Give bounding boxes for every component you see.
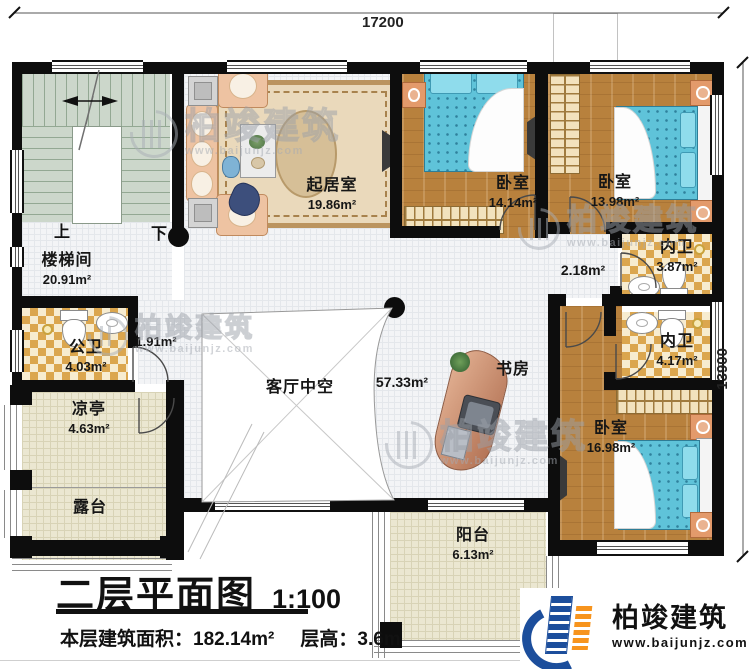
room-label-bedroom3: 卧室16.98m² [587, 419, 635, 457]
company-website: www.baijunjz.com [612, 635, 748, 650]
dimension-top: 17200 [362, 14, 404, 31]
public-bath-drain [42, 324, 53, 335]
room-label-bedroom2: 卧室13.98m² [591, 173, 639, 211]
column-dot [168, 226, 189, 247]
bedroom3-closet [616, 388, 714, 414]
public-bath-sink [96, 312, 128, 334]
stair-treads-right [120, 126, 170, 222]
roof-outline [553, 13, 618, 62]
bath2-sink [626, 312, 658, 334]
window [10, 330, 24, 372]
bath2-drain [692, 318, 703, 329]
railing [4, 490, 20, 538]
bedroom1-nightstand [402, 82, 426, 108]
side-table-top [188, 76, 218, 106]
bedroom3-pillow [682, 446, 698, 480]
window [420, 60, 527, 74]
floor-height-value: 3.6m [357, 629, 400, 650]
room-label-living: 起居室19.86m² [306, 176, 357, 214]
area-label-nook: 2.18m² [561, 261, 605, 279]
column-dot [384, 297, 405, 318]
pavilion-terrace-divider [22, 487, 166, 488]
company-logo: 柏竣建筑 www.baijunjz.com [520, 588, 750, 664]
window [227, 60, 347, 74]
area-label-corridor: 1.91m² [135, 334, 176, 351]
window [215, 498, 330, 512]
window [52, 60, 143, 74]
room-label-stairwell: 楼梯间20.91m² [41, 251, 92, 289]
bedroom2-wardrobe [550, 74, 580, 174]
side-table-bottom [188, 198, 218, 228]
stair-treads-top [22, 70, 170, 126]
bedroom2-pillow [680, 152, 696, 188]
room-label-terrace: 露台 [73, 498, 107, 519]
window [710, 95, 724, 175]
window [10, 150, 24, 213]
bedroom1-pillow [430, 72, 472, 94]
room-label-bedroom1: 卧室14.14m² [489, 174, 537, 212]
floor-height-label: 层高： [300, 629, 357, 650]
title-underline [56, 609, 308, 614]
coffee-table [240, 124, 276, 178]
room-label-pavilion: 凉亭4.63m² [68, 400, 109, 438]
company-name: 柏竣建筑 [612, 602, 748, 634]
window [590, 60, 690, 74]
room-label-bath1: 内卫3.87m² [656, 238, 697, 276]
study-plant [450, 352, 470, 372]
window [597, 540, 688, 556]
window [10, 247, 24, 267]
pillar [10, 536, 32, 558]
bedroom2-pillow [680, 112, 696, 148]
pillar [10, 385, 32, 405]
floor-area-label: 本层建筑面积： [60, 629, 193, 650]
dimension-right: 13900 [714, 348, 731, 390]
room-label-study: 书房 [496, 360, 530, 381]
room-label-balcony: 阳台6.13m² [452, 526, 493, 564]
room-label-bath2: 内卫4.17m² [656, 332, 697, 370]
floor-area-value: 182.14m² [193, 629, 274, 650]
floor-plan-sheet: 17200 13900 上 下 楼梯间20.91m² 起居室19.86m² 卧室… [0, 0, 750, 669]
room-label-public-bath: 公卫4.03m² [65, 338, 106, 376]
drawing-info: 本层建筑面积：182.14m² 层高：3.6m [60, 624, 401, 651]
stair-up-label: 上 [54, 218, 70, 242]
stair-treads-left [22, 126, 72, 222]
figure-decor [222, 156, 240, 178]
company-logo-icon [520, 594, 604, 658]
pillar [160, 536, 184, 558]
area-label-hall: 57.33m² [376, 373, 428, 391]
balcony-door [428, 498, 524, 512]
room-label-hall-void: 客厅中空 [266, 378, 334, 399]
sofa-long [186, 104, 218, 202]
railing [4, 405, 20, 470]
stair-well-void [72, 126, 122, 224]
pillar [10, 470, 32, 490]
stair-down-label: 下 [151, 220, 167, 244]
